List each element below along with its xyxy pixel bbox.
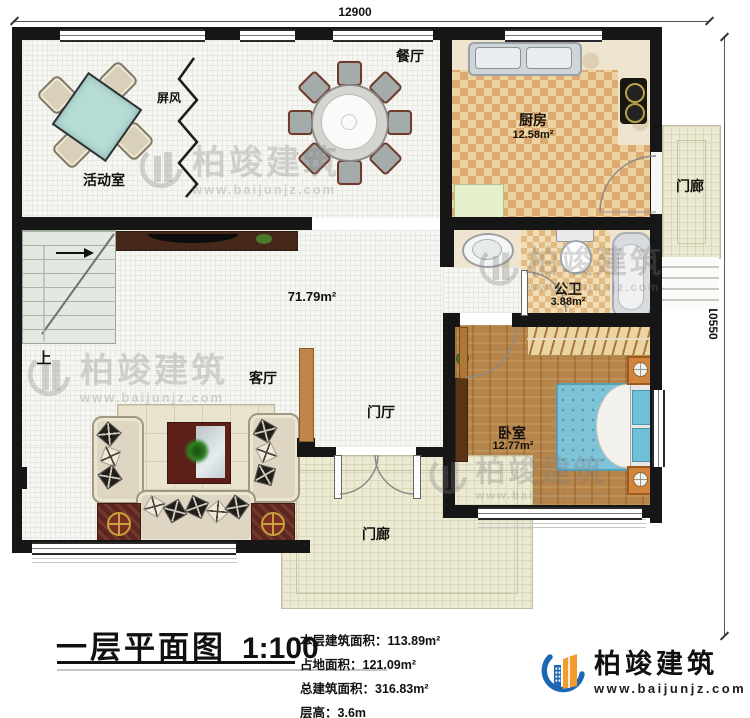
room-label-activity: 活动室 — [74, 170, 134, 190]
dining-chair — [288, 110, 313, 135]
window — [333, 29, 433, 42]
wall — [440, 217, 662, 230]
title-underline — [57, 661, 295, 664]
company-logo: 柏竣建筑 www.baijunjz.com — [540, 648, 746, 698]
bedroom-desk — [455, 378, 468, 462]
stat-line: 层高：3.6m — [300, 702, 440, 718]
company-name: 柏竣建筑 — [594, 651, 746, 678]
floor-corridor — [443, 267, 523, 313]
room-label-screen: 屏风 — [152, 89, 186, 106]
table-plant — [184, 438, 210, 464]
stat-value: 113.89m² — [388, 634, 441, 648]
partition-screen-wall — [299, 348, 314, 442]
window — [240, 29, 295, 42]
stat-label: 层高： — [300, 706, 338, 718]
room-area-bath: 3.88m² — [544, 296, 592, 308]
wall — [440, 217, 454, 267]
wall — [416, 447, 455, 457]
entry-door-leaf — [334, 455, 342, 499]
wall — [440, 40, 452, 217]
toilet-bowl — [560, 240, 592, 274]
window-sill — [478, 519, 646, 528]
stats-block: 本层建筑面积：113.89m² 占地面积：121.09m² 总建筑面积：316.… — [300, 630, 440, 718]
floor-plan-page: 12900 10550 — [0, 0, 750, 718]
entry-door-leaf — [413, 455, 421, 499]
stat-label: 总建筑面积： — [300, 682, 375, 696]
kitchen-sink-basin — [475, 47, 521, 69]
stat-line: 占地面积：121.09m² — [300, 654, 440, 673]
window — [60, 29, 205, 42]
room-label-living: 客厅 — [243, 368, 283, 388]
stat-label: 占地面积： — [300, 658, 363, 672]
wall — [12, 217, 312, 230]
stat-line: 本层建筑面积：113.89m² — [300, 630, 440, 649]
dimension-tick — [720, 631, 729, 640]
porch-inner-border — [296, 470, 518, 594]
stat-value: 3.6m — [338, 706, 367, 718]
company-logo-icon — [540, 648, 586, 698]
window-sill — [32, 554, 237, 565]
dining-chair — [387, 110, 412, 135]
rug-medallion — [107, 512, 131, 536]
porch-bottom-floor — [281, 455, 533, 609]
room-label-dining: 餐厅 — [392, 46, 428, 66]
tv-plant — [256, 234, 272, 244]
porch-right-steps — [662, 257, 719, 309]
dimension-top: 12900 — [325, 5, 385, 19]
headboard-panel — [632, 390, 651, 425]
headboard-panel — [632, 428, 651, 462]
stat-line: 总建筑面积：316.83m² — [300, 678, 440, 697]
company-url: www.baijunjz.com — [594, 682, 746, 695]
wardrobe — [527, 325, 652, 356]
dining-chair — [337, 61, 362, 86]
bath-sink-bowl — [472, 239, 502, 260]
stove-burner — [625, 103, 645, 123]
door-opening — [651, 152, 662, 214]
window — [32, 542, 236, 555]
room-label-porch-right: 门廊 — [668, 176, 712, 196]
staircase — [22, 230, 116, 344]
room-label-porch-bottom: 门廊 — [354, 524, 398, 544]
bedroom-door-leaf — [459, 327, 468, 379]
window — [652, 390, 665, 467]
dimension-line-top — [14, 21, 710, 22]
stat-label: 本层建筑面积： — [300, 634, 388, 648]
room-area-kitchen: 12.58m² — [500, 129, 566, 141]
dining-table-center — [341, 114, 357, 130]
stove-burner — [625, 83, 645, 103]
wardrobe-rod — [527, 338, 650, 340]
wall — [443, 313, 455, 518]
window — [478, 507, 642, 520]
window — [505, 29, 602, 42]
dining-chair — [337, 160, 362, 185]
wall — [512, 313, 662, 327]
stat-value: 316.83m² — [375, 682, 429, 696]
wall — [12, 467, 27, 489]
room-area-bedroom: 12.77m² — [485, 440, 541, 452]
stat-value: 121.09m² — [363, 658, 417, 672]
dimension-line-right — [724, 37, 725, 637]
wall — [297, 447, 336, 457]
open-area-value: 71.79m² — [284, 289, 340, 304]
stairs-up-label: 上 — [33, 347, 55, 368]
rug-medallion — [261, 512, 285, 536]
room-label-kitchen: 厨房 — [505, 110, 561, 130]
room-label-foyer: 门厅 — [361, 402, 401, 422]
kitchen-board — [454, 184, 504, 219]
dimension-tick — [705, 16, 714, 25]
kitchen-sink-basin — [526, 47, 572, 69]
bathroom-door-leaf — [521, 270, 528, 316]
bathtub-inner — [618, 244, 644, 310]
